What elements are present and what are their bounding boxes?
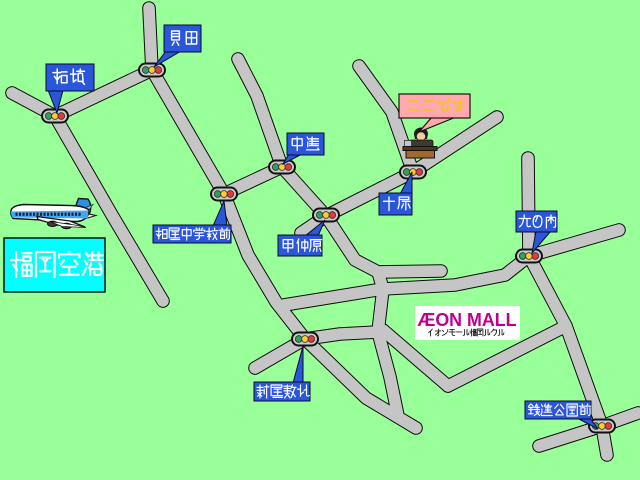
svg-text:ÆON MALL: ÆON MALL	[418, 309, 517, 330]
